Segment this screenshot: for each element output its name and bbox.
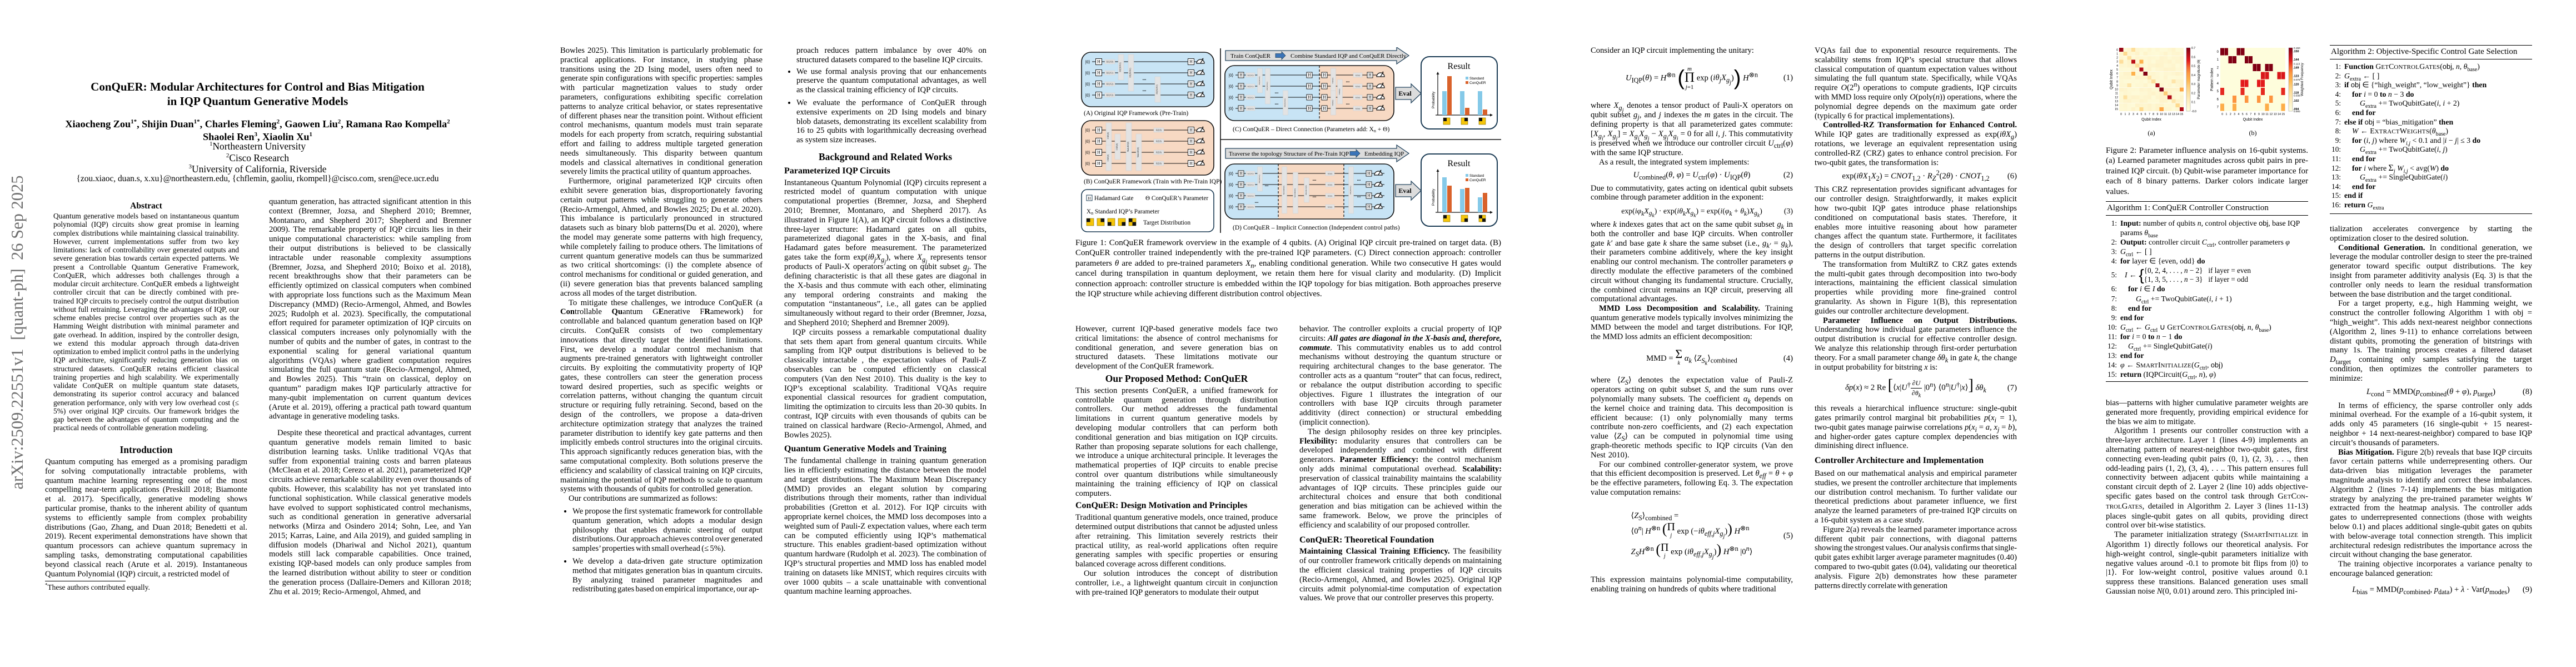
svg-text:Result: Result <box>1448 62 1471 71</box>
svg-text:H: H <box>1308 106 1311 111</box>
svg-text:H: H <box>1367 193 1371 198</box>
svg-text:13: 13 <box>2274 113 2277 116</box>
svg-text:15: 15 <box>2281 113 2285 116</box>
svg-text:RZ(X1): RZ(X1) <box>1247 184 1254 186</box>
svg-text:RZ(θ): RZ(θ) <box>1356 86 1361 88</box>
svg-text:7: 7 <box>2250 113 2251 116</box>
svg-text:.123: .123 <box>2293 75 2299 78</box>
svg-text:H: H <box>1239 95 1243 100</box>
svg-text:CRZ(θ): CRZ(θ) <box>1338 88 1341 95</box>
svg-text:(B) ConQuER Framework (Train w: (B) ConQuER Framework (Train with Pre-Tr… <box>1084 178 1222 185</box>
svg-text:|0⟩: |0⟩ <box>1229 84 1234 89</box>
svg-text:|0⟩: |0⟩ <box>1229 171 1234 176</box>
svg-text:H: H <box>1368 84 1372 89</box>
svg-text:.094: .094 <box>2293 108 2299 111</box>
svg-text:RZ(θ): RZ(θ) <box>1356 97 1361 99</box>
svg-text:...: ... <box>1346 100 1350 106</box>
svg-text:MultiRZ(θ): MultiRZ(θ) <box>1283 185 1285 195</box>
svg-text:.120: .120 <box>2293 83 2299 86</box>
svg-text:2: 2 <box>2230 113 2231 116</box>
svg-text:H: H <box>1097 150 1100 155</box>
svg-text:-0.0: -0.0 <box>2191 110 2196 113</box>
svg-text:ZZ(X0X1): ZZ(X0X1) <box>1258 76 1260 85</box>
svg-text:7: 7 <box>2149 113 2150 116</box>
svg-text:|0⟩: |0⟩ <box>1229 95 1234 100</box>
svg-text:H: H <box>1323 73 1326 78</box>
svg-text:RZ(X1): RZ(X1) <box>1107 72 1114 74</box>
svg-text:H: H <box>1367 205 1371 210</box>
svg-text:11: 11 <box>2115 92 2118 96</box>
svg-text:RZ(X0): RZ(X0) <box>1247 173 1254 175</box>
svg-text:3: 3 <box>2116 61 2118 64</box>
svg-text:(D) ConQuER – Implicit Connect: (D) ConQuER – Implicit Connection (Indep… <box>1233 225 1400 231</box>
svg-text:.150: .150 <box>2293 50 2299 53</box>
svg-text:0.6: 0.6 <box>2191 56 2195 59</box>
svg-text:...: ... <box>1143 76 1147 81</box>
svg-text:MultiRZ(θ): MultiRZ(θ) <box>1137 147 1139 157</box>
svg-text:|0⟩: |0⟩ <box>1085 59 1090 64</box>
svg-text:0: 0 <box>2217 51 2219 54</box>
svg-text:6: 6 <box>2246 113 2248 116</box>
svg-text:Qubit Index: Qubit Index <box>2110 69 2114 89</box>
svg-text:RZ(X0): RZ(X0) <box>1107 61 1114 63</box>
svg-text:RZ(θ): RZ(θ) <box>1328 173 1333 175</box>
svg-text:RZ(θ): RZ(θ) <box>1356 108 1361 110</box>
svg-text:H: H <box>1239 106 1243 111</box>
svg-text:|0⟩: |0⟩ <box>1085 93 1090 98</box>
svg-text:Eval: Eval <box>1398 89 1412 97</box>
svg-text:CRZ(θ): CRZ(θ) <box>1332 77 1334 84</box>
svg-text:H: H <box>1189 82 1193 87</box>
svg-text:ZZ(X0X1): ZZ(X0X1) <box>1349 186 1352 195</box>
svg-text:0: 0 <box>2116 48 2118 52</box>
svg-text:|0⟩: |0⟩ <box>1229 182 1234 187</box>
svg-text:14: 14 <box>2176 113 2179 116</box>
svg-text:RZ(X2): RZ(X2) <box>1107 83 1114 86</box>
svg-text:(C) ConQuER – Direct Connectio: (C) ConQuER – Direct Connection (Paramet… <box>1233 126 1389 133</box>
svg-text:H: H <box>1189 71 1193 76</box>
svg-text:H: H <box>1097 59 1100 64</box>
svg-text:CRZ(θ): CRZ(θ) <box>1115 143 1118 150</box>
svg-text:ZZ(X0X2): ZZ(X0X2) <box>1266 82 1268 91</box>
svg-text:ZZ(X0X1): ZZ(X0X1) <box>1258 175 1260 183</box>
svg-text:...: ... <box>1143 87 1147 92</box>
svg-text:H: H <box>1239 84 1243 89</box>
svg-text:Combine Standard IQP and ConQu: Combine Standard IQP and ConQuER Directl… <box>1291 53 1407 59</box>
svg-text:9: 9 <box>2156 113 2158 116</box>
svg-text:H: H <box>1189 139 1193 144</box>
svg-text:Weighted Frequency: Weighted Frequency <box>2300 62 2304 96</box>
svg-text:.102: .102 <box>2293 99 2299 103</box>
svg-text:2: 2 <box>2129 113 2130 116</box>
svg-text:RZ(θ): RZ(θ) <box>1328 184 1333 186</box>
svg-text:ZZ(X0X2): ZZ(X0X2) <box>1129 68 1132 78</box>
svg-text:RZ(X3): RZ(X3) <box>1247 108 1254 110</box>
svg-text:H: H <box>1308 95 1311 100</box>
svg-text:Target Distribution: Target Distribution <box>1143 220 1190 226</box>
svg-text:RZ(θ): RZ(θ) <box>1356 74 1361 77</box>
svg-text:2: 2 <box>2116 57 2118 60</box>
svg-text:Train ConQuER: Train ConQuER <box>1230 53 1271 59</box>
svg-text:H: H <box>1323 84 1326 89</box>
svg-text:9: 9 <box>2258 113 2260 116</box>
svg-text:RZ(X2): RZ(X2) <box>1247 97 1254 99</box>
svg-text:H: H <box>1189 150 1193 155</box>
svg-text:3: 3 <box>2217 74 2219 78</box>
svg-text:Xn Standard IQP’s Parameter: Xn Standard IQP’s Parameter <box>1087 208 1159 216</box>
svg-text:Pattern Index: Pattern Index <box>2210 68 2214 91</box>
svg-text:0.1: 0.1 <box>2191 101 2195 104</box>
svg-text:10: 10 <box>2115 88 2118 92</box>
svg-text:8: 8 <box>2153 113 2154 116</box>
svg-text:Qubit Index: Qubit Index <box>2243 118 2263 122</box>
svg-text:Qubit Index: Qubit Index <box>2141 118 2161 122</box>
svg-text:RZ(X0): RZ(X0) <box>1247 74 1254 77</box>
svg-text:H: H <box>1097 139 1100 144</box>
svg-text:|0⟩: |0⟩ <box>1085 139 1090 144</box>
svg-text:H: H <box>1189 128 1193 133</box>
svg-text:4: 4 <box>2238 113 2239 116</box>
svg-text:7: 7 <box>2217 106 2219 109</box>
svg-text:...: ... <box>1275 89 1279 94</box>
svg-text:|0⟩: |0⟩ <box>1085 82 1090 87</box>
svg-text:RZ(θ): RZ(θ) <box>1156 129 1162 132</box>
svg-text:1: 1 <box>2116 53 2118 56</box>
svg-text:4: 4 <box>2136 113 2138 116</box>
svg-text:H: H <box>1323 95 1326 100</box>
svg-text:RZ(θ): RZ(θ) <box>1328 195 1333 197</box>
svg-text:14: 14 <box>2115 104 2118 107</box>
svg-text:Θ ConQuER’s Parameter: Θ ConQuER’s Parameter <box>1145 195 1208 202</box>
svg-text:12: 12 <box>2168 113 2171 116</box>
svg-text:...: ... <box>1357 176 1361 182</box>
svg-text:Traverse the topology Structur: Traverse the topology Structure of Pre-T… <box>1229 151 1349 157</box>
svg-text:Probability: Probability <box>1432 91 1436 108</box>
svg-text:ZZ(X0X1): ZZ(X0X1) <box>1119 62 1122 72</box>
svg-text:H: H <box>1367 182 1371 187</box>
svg-text:5: 5 <box>2217 90 2219 93</box>
svg-text:Parameter magnitude |θ|: Parameter magnitude |θ| <box>2197 59 2201 99</box>
svg-text:13: 13 <box>2172 113 2175 116</box>
svg-text:H: H <box>1239 73 1243 78</box>
svg-text:MultiRZ(θ): MultiRZ(θ) <box>1294 188 1296 197</box>
svg-text:13: 13 <box>2115 100 2118 103</box>
svg-text:RZ(X1): RZ(X1) <box>1247 86 1254 88</box>
svg-text:H: H <box>1367 171 1371 176</box>
svg-text:H: H <box>1368 95 1372 100</box>
svg-text:|0⟩: |0⟩ <box>1085 128 1090 133</box>
svg-text:H: H <box>1239 171 1243 176</box>
svg-text:0.2: 0.2 <box>2191 92 2195 95</box>
svg-text:11: 11 <box>2265 113 2268 116</box>
svg-text:Standard: Standard <box>1469 174 1484 178</box>
svg-text:CRZ(θ): CRZ(θ) <box>1107 154 1109 161</box>
svg-text:0.3: 0.3 <box>2191 83 2195 86</box>
svg-text:ZZ(X2X3): ZZ(X2X3) <box>1284 98 1286 107</box>
svg-text:12: 12 <box>2115 96 2118 99</box>
svg-text:H: H <box>1088 196 1090 201</box>
svg-text:H: H <box>1097 161 1100 166</box>
svg-text:CRZ(θ): CRZ(θ) <box>1332 99 1334 106</box>
svg-text:H: H <box>1189 93 1193 98</box>
svg-text:15: 15 <box>2180 113 2184 116</box>
svg-text:H: H <box>1239 205 1243 210</box>
svg-text:H: H <box>1097 82 1100 87</box>
svg-text:|0⟩: |0⟩ <box>1229 106 1234 111</box>
svg-text:4: 4 <box>2217 82 2219 86</box>
svg-text:H: H <box>1189 59 1193 64</box>
svg-text:11: 11 <box>2164 113 2167 116</box>
svg-text:RZ(X2): RZ(X2) <box>1247 195 1254 197</box>
svg-text:4: 4 <box>2116 64 2118 68</box>
svg-text:5: 5 <box>2242 113 2244 116</box>
svg-text:...: ... <box>1357 193 1361 198</box>
svg-text:1: 1 <box>2217 58 2219 62</box>
svg-text:|0⟩: |0⟩ <box>1229 73 1234 78</box>
svg-text:MultiR Z(θ): MultiR Z(θ) <box>1305 185 1307 195</box>
svg-text:H: H <box>1308 73 1311 78</box>
svg-text:0.075: 0.075 <box>2294 78 2300 81</box>
svg-text:Hadamard Gate: Hadamard Gate <box>1094 195 1134 202</box>
svg-text:Probability: Probability <box>1432 188 1436 206</box>
svg-text:10: 10 <box>2160 113 2163 116</box>
svg-text:H: H <box>1323 106 1326 111</box>
svg-text:MultiRZ(θ): MultiRZ(θ) <box>1127 141 1129 152</box>
svg-text:H: H <box>1239 182 1243 187</box>
svg-text:...: ... <box>1275 100 1279 106</box>
svg-text:RZ(X3): RZ(X3) <box>1247 206 1254 208</box>
svg-text:...: ... <box>1313 176 1317 182</box>
svg-text:1: 1 <box>2124 113 2126 116</box>
svg-text:6: 6 <box>2217 98 2219 101</box>
svg-text:(b): (b) <box>2249 129 2257 137</box>
svg-text:5: 5 <box>2116 68 2118 72</box>
svg-text:8: 8 <box>2116 80 2118 83</box>
svg-text:ConQuER: ConQuER <box>1469 81 1486 85</box>
svg-text:...: ... <box>1346 78 1350 83</box>
svg-text:H: H <box>1239 193 1243 198</box>
svg-text:15: 15 <box>2115 108 2118 111</box>
svg-text:0.150: 0.150 <box>2294 47 2300 49</box>
svg-text:RZ(θ): RZ(θ) <box>1156 162 1162 165</box>
svg-text:3: 3 <box>2132 113 2134 116</box>
svg-text:0.7: 0.7 <box>2191 47 2195 50</box>
svg-text:Eval: Eval <box>1398 187 1412 195</box>
svg-text:RZ(θ): RZ(θ) <box>1156 140 1162 143</box>
svg-text:2: 2 <box>2217 66 2219 69</box>
svg-text:0: 0 <box>2221 113 2223 116</box>
svg-text:H: H <box>1189 161 1193 166</box>
svg-text:H: H <box>1368 106 1372 111</box>
svg-text:CRZ(θ): CRZ(θ) <box>1107 132 1109 139</box>
svg-text:RZ(θ): RZ(θ) <box>1328 206 1333 208</box>
svg-text:14: 14 <box>2278 113 2281 116</box>
svg-text:H: H <box>1368 73 1372 78</box>
svg-text:0.5: 0.5 <box>2191 65 2195 68</box>
svg-text:0: 0 <box>2120 113 2122 116</box>
svg-text:(a): (a) <box>2148 129 2155 137</box>
svg-text:...: ... <box>1265 182 1269 187</box>
svg-text:3: 3 <box>2234 113 2235 116</box>
svg-text:RZ(X3): RZ(X3) <box>1107 94 1114 97</box>
svg-text:.118: .118 <box>2293 91 2299 94</box>
svg-text:.149: .149 <box>2293 67 2299 70</box>
svg-text:H: H <box>1097 71 1100 76</box>
svg-text:H: H <box>1097 93 1100 98</box>
svg-text:H: H <box>1308 84 1311 89</box>
svg-text:Result: Result <box>1448 159 1471 168</box>
svg-text:8: 8 <box>2254 113 2256 116</box>
svg-text:6: 6 <box>2116 72 2118 76</box>
svg-text:|0⟩: |0⟩ <box>1229 205 1234 210</box>
svg-text:RZ(θ): RZ(θ) <box>1156 151 1162 154</box>
svg-text:9: 9 <box>2116 84 2118 88</box>
svg-text:Standard: Standard <box>1469 77 1484 81</box>
svg-text:12: 12 <box>2270 113 2273 116</box>
svg-text:10: 10 <box>2261 113 2265 116</box>
svg-text:H: H <box>1097 128 1100 133</box>
svg-text:...: ... <box>1255 198 1259 204</box>
svg-text:0.4: 0.4 <box>2191 74 2195 77</box>
svg-text:.144: .144 <box>2293 58 2299 62</box>
svg-text:(A) Original IQP Framework (Pr: (A) Original IQP Framework (Pre-Train) <box>1084 110 1188 117</box>
svg-text:...: ... <box>1313 193 1317 198</box>
svg-text:7: 7 <box>2116 76 2118 79</box>
svg-text:5: 5 <box>2140 113 2142 116</box>
svg-text:Embedding IQP: Embedding IQP <box>1364 151 1404 157</box>
svg-text:|0⟩: |0⟩ <box>1085 150 1090 155</box>
svg-text:ConQuER: ConQuER <box>1469 178 1486 182</box>
svg-text:|0⟩: |0⟩ <box>1229 193 1234 198</box>
svg-text:|0⟩: |0⟩ <box>1085 161 1090 166</box>
svg-text:ZZ(X2X3): ZZ(X2X3) <box>1155 84 1158 94</box>
svg-text:|0⟩: |0⟩ <box>1085 71 1090 76</box>
svg-text:6: 6 <box>2145 113 2146 116</box>
svg-text:0.113: 0.113 <box>2294 63 2300 66</box>
svg-text:1: 1 <box>2226 113 2228 116</box>
